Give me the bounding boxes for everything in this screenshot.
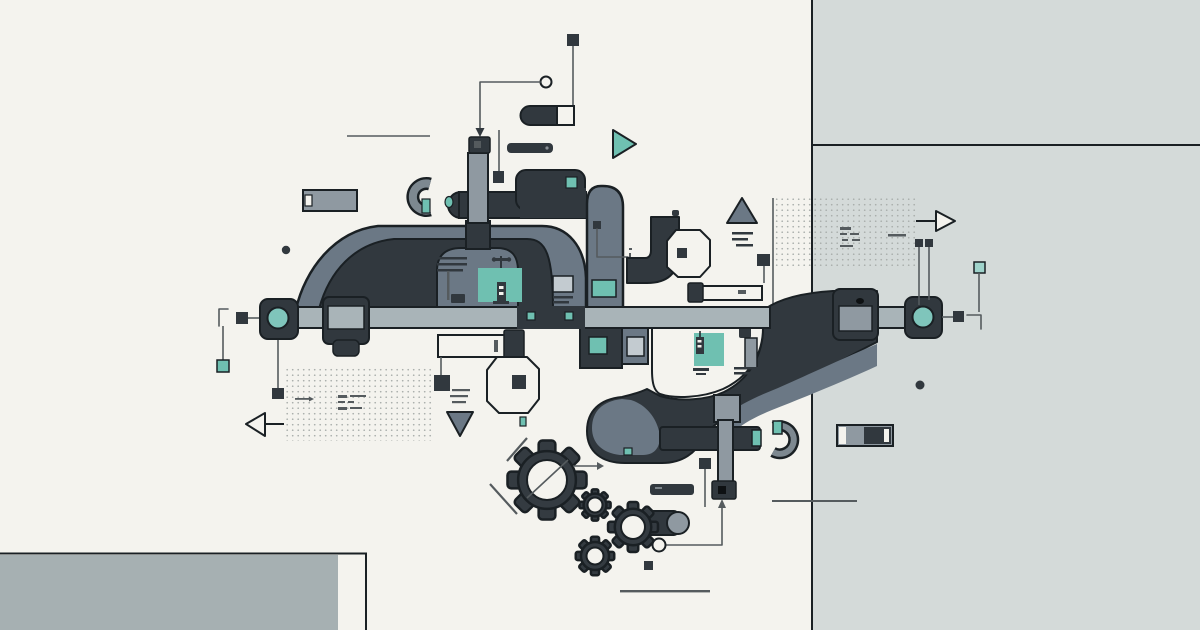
teal-node-square: [217, 360, 229, 372]
illustration-stage: [0, 0, 1200, 630]
abstract-machinery-illustration: [0, 0, 1200, 630]
usb-capsule-icon: [303, 190, 357, 211]
bottom-horizontal-pipe: [660, 427, 760, 450]
bottom-left-slab: [0, 555, 338, 630]
small-dot: [282, 246, 290, 254]
dark-bar-icon: [507, 143, 553, 153]
node-square: [757, 254, 770, 266]
right-clamp: [833, 289, 878, 340]
node-square: [493, 171, 504, 183]
node-square: [925, 239, 933, 247]
mini-pipe: [745, 338, 757, 368]
teal-chip: [566, 177, 577, 188]
teal-chip: [589, 337, 607, 354]
pill-capsule-icon: [521, 106, 575, 125]
teal-cap-dot: [445, 197, 453, 208]
teal-node-square: [974, 262, 985, 273]
node-square: [236, 312, 248, 324]
left-hub-joint: [260, 299, 298, 339]
small-dot: [916, 381, 925, 390]
octagon-badge-right: [667, 230, 710, 277]
node-square: [699, 458, 711, 469]
node-square: [953, 311, 964, 322]
vertical-feed-pipe: [466, 137, 490, 249]
floating-line: [620, 590, 710, 592]
drop-pipe: [718, 420, 733, 483]
node-square: [272, 388, 284, 399]
node-circle: [653, 539, 666, 552]
teal-cap-dot: [624, 448, 632, 455]
node-square: [567, 34, 579, 46]
rail-right-segment: [877, 307, 908, 328]
node-square: [915, 239, 923, 247]
right-hub-joint: [905, 297, 942, 338]
dark-bar-icon: [650, 484, 694, 495]
floating-line: [772, 500, 857, 502]
teal-chip: [592, 280, 616, 297]
under-rail-blocks: [580, 328, 648, 368]
teal-pipe-cap: [752, 430, 761, 446]
node-square: [644, 561, 653, 570]
dot-grid-left: [283, 365, 432, 441]
battery-capsule-icon: [837, 425, 893, 446]
printer-glyph: [451, 294, 465, 303]
node-circle: [541, 77, 552, 88]
